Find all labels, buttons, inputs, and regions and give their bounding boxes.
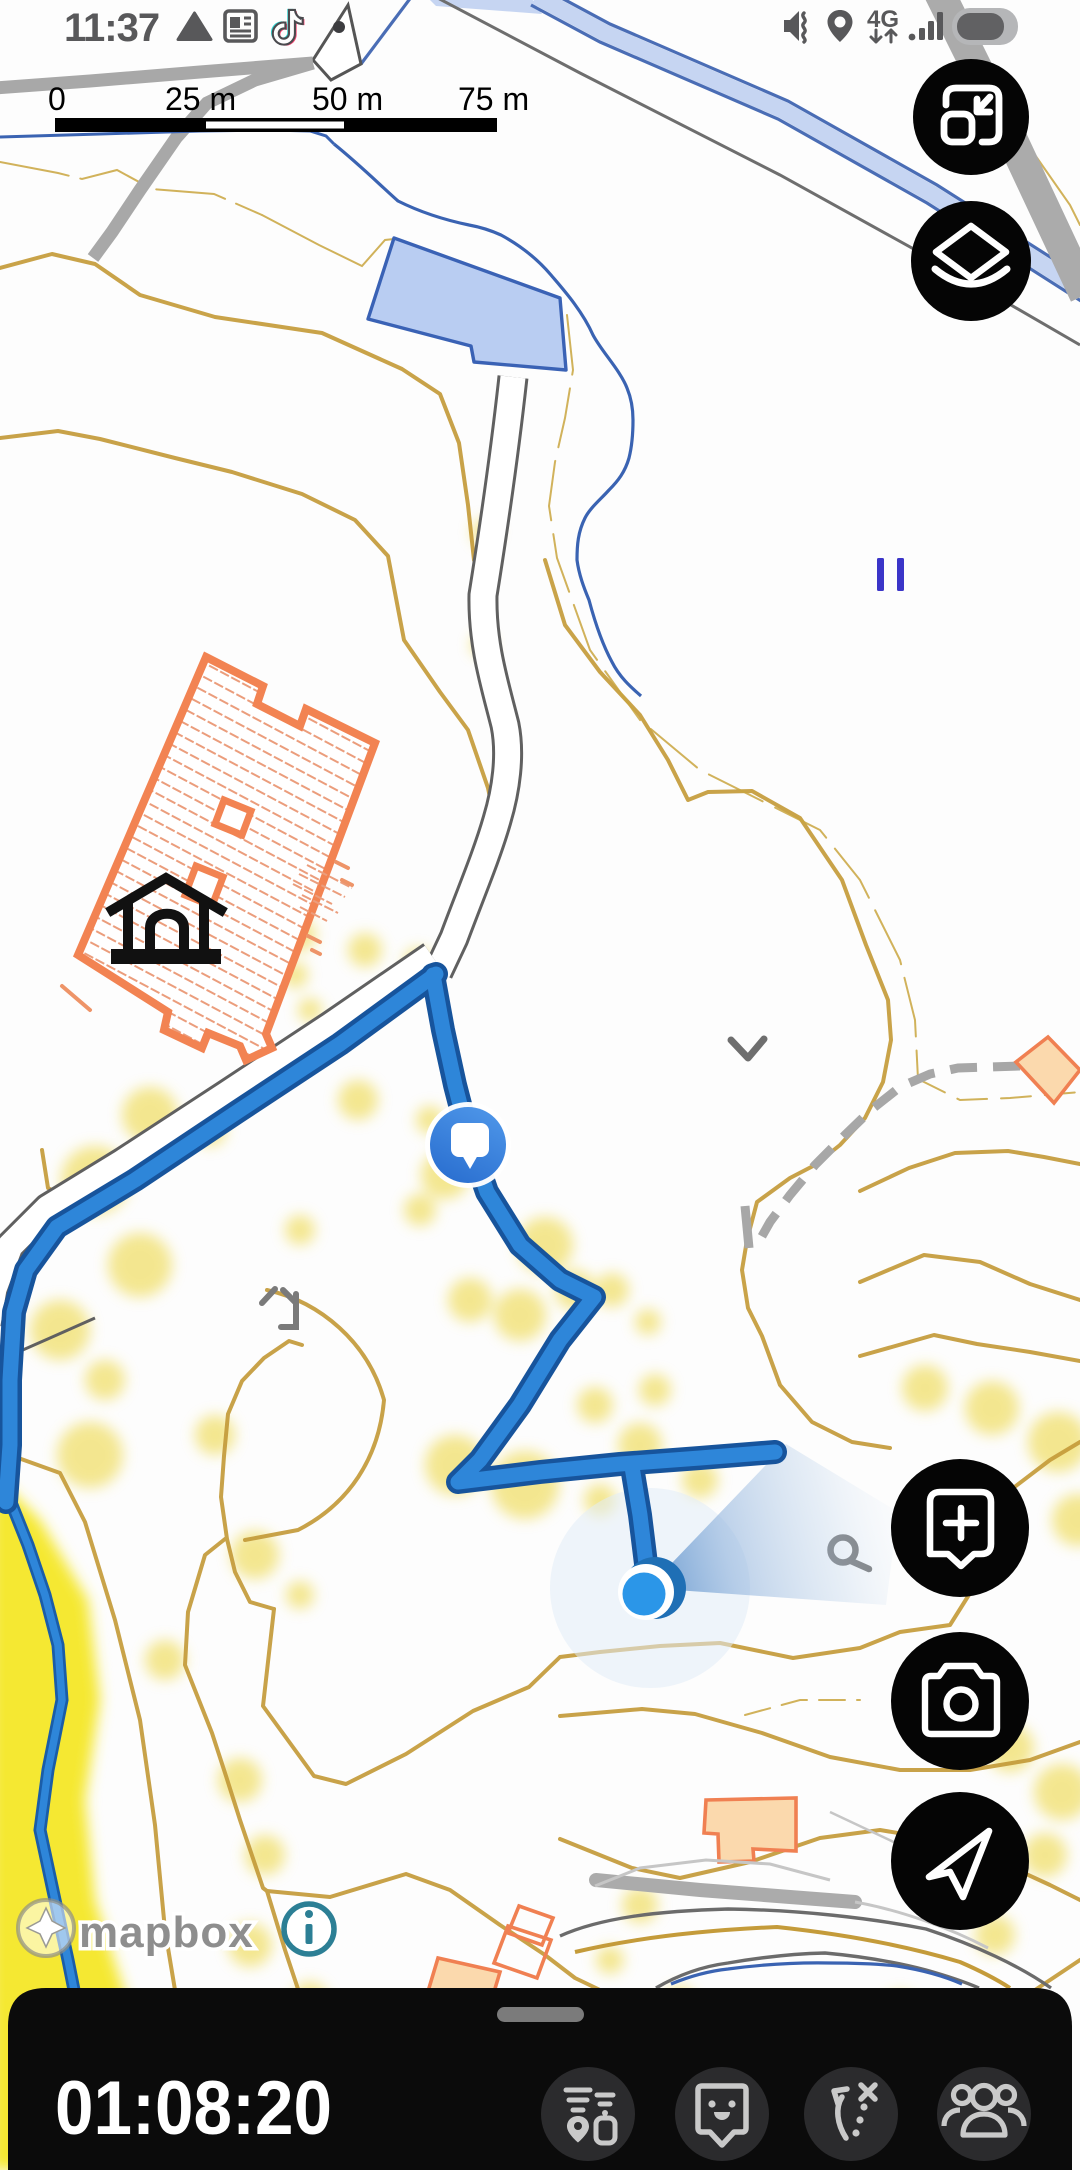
svg-text:75 m: 75 m	[458, 81, 529, 117]
svg-text:mapbox: mapbox	[79, 1908, 254, 1957]
svg-text:50 m: 50 m	[312, 81, 383, 117]
svg-text:25 m: 25 m	[165, 81, 236, 117]
svg-text:01:08:20: 01:08:20	[55, 2066, 332, 2151]
svg-text:4G: 4G	[867, 6, 899, 33]
svg-text:0: 0	[48, 81, 66, 117]
svg-text:11:37: 11:37	[64, 6, 159, 50]
